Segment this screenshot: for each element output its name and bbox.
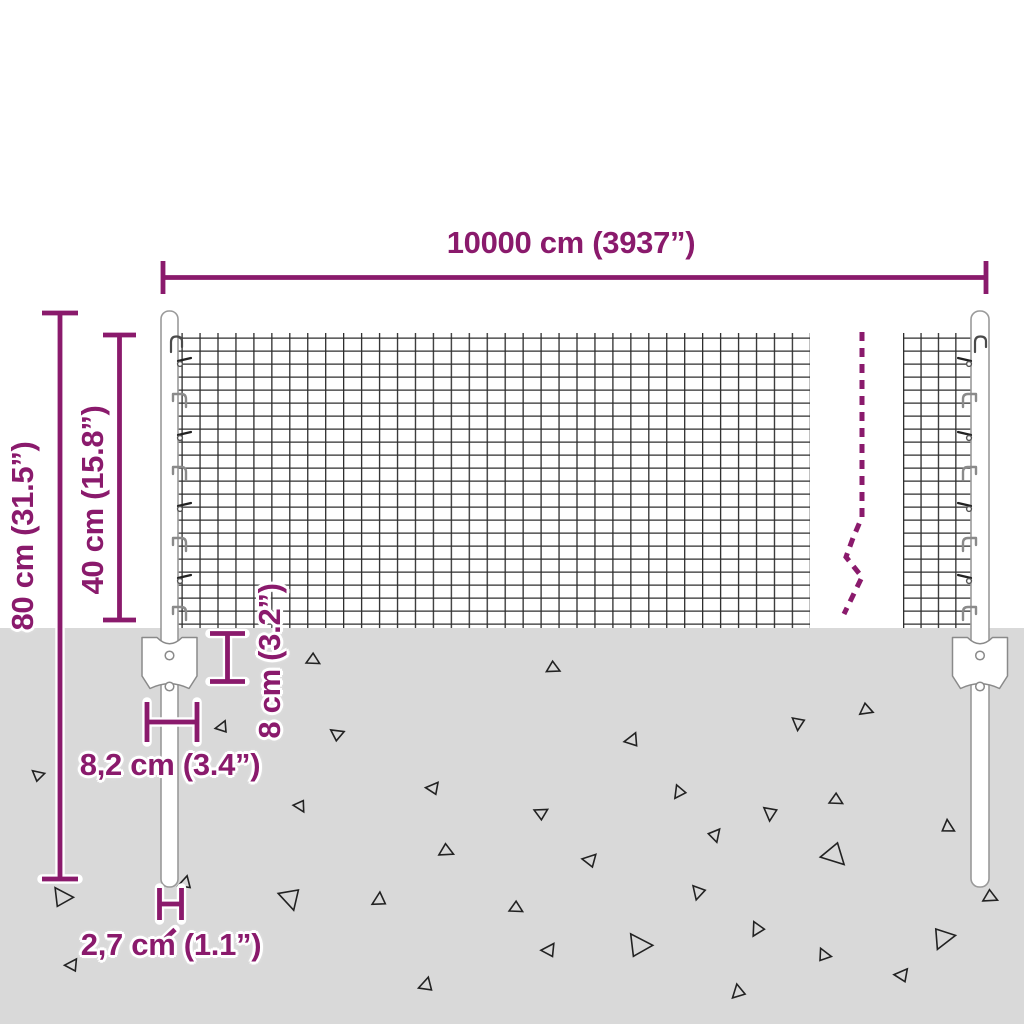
diagram-canvas: 10000 cm (3937”) 40 cm (15.8”) 80 cm (31… [0, 0, 1024, 1024]
break-line-zigzag [844, 332, 862, 614]
dim-label-post-diameter: 2,7 cm (1.1”) [81, 927, 261, 963]
dim-label-total-length: 10000 cm (3937”) [447, 225, 696, 261]
left-anchor-plate [142, 638, 197, 691]
right-anchor-plate [953, 638, 1008, 691]
dim-label-mesh-height: 40 cm (15.8”) [75, 405, 111, 594]
right-post [971, 311, 989, 887]
dim-label-anchor-width: 8,2 cm (3.4”) [80, 747, 260, 783]
fence-diagram-graphics [0, 0, 1024, 1024]
dim-label-post-height: 80 cm (31.5”) [5, 441, 41, 630]
dim-label-anchor-depth: 8 cm (3.2”) [252, 583, 288, 738]
left-post [161, 311, 178, 887]
